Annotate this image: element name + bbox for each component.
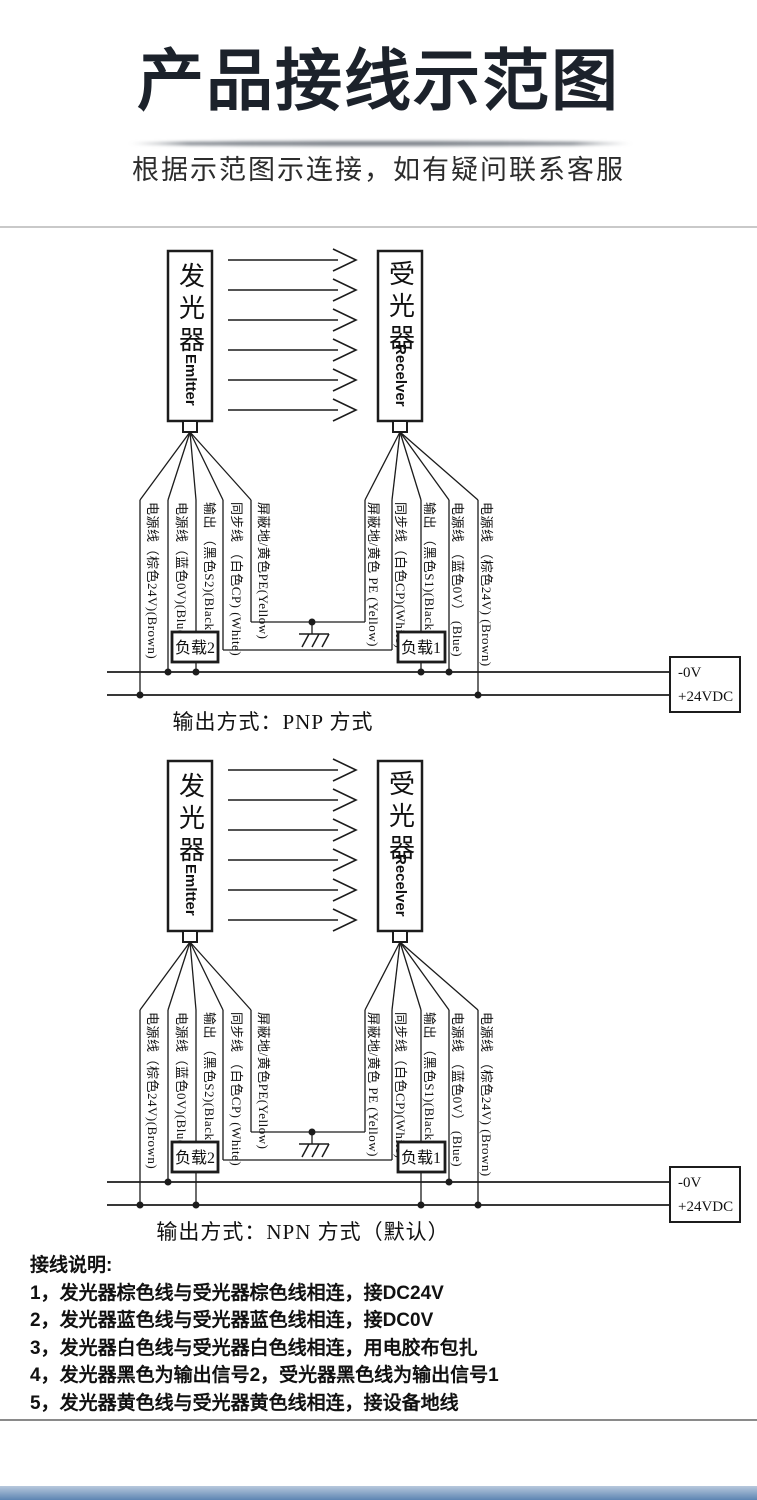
load1-label: 负载1 [401, 1149, 441, 1167]
note-item: 1，发光器棕色线与受光器棕色线相连，接DC24V [30, 1280, 740, 1308]
power-24v-label: +24VDC [678, 1199, 733, 1215]
junction-dot [137, 1202, 144, 1209]
power-24v-label: +24VDC [678, 689, 733, 705]
junction-dot [475, 692, 482, 699]
wire-label-right-4: 电源线 （棕色24V) (Brown) [479, 1012, 494, 1177]
junction-dot [475, 1202, 482, 1209]
load2-label: 负载2 [175, 639, 215, 657]
junction-dot [165, 669, 172, 676]
page: 产品接线示范图 根据示范图示连接，如有疑问联系客服 发光器Emltter受光器R… [0, 0, 757, 1500]
emitter-connector [183, 931, 197, 942]
wire-label-left-1: 电源线（蓝色0V)(Blue) [174, 1012, 189, 1151]
wire-fan-segment [140, 942, 190, 1010]
emitter-label-cn: 发光器 [176, 772, 205, 868]
wire-fan-segment [365, 432, 400, 500]
wire-fan-segment [190, 942, 251, 1010]
emitter-label-cn: 发光器 [176, 262, 205, 358]
wire-label-left-3: 同步线 （白色CP) (White) [229, 1012, 244, 1166]
output-mode-caption: 输出方式：NPN 方式（默认） [156, 1220, 449, 1244]
ground-hatch [322, 1144, 329, 1157]
wire-label-right-3: 电源线 （蓝色0V） (Blue) [450, 1012, 465, 1167]
wire-fan-segment [190, 432, 251, 500]
load2-label: 负载2 [175, 1149, 215, 1167]
receiver-connector [393, 931, 407, 942]
notes-heading: 接线说明: [30, 1252, 740, 1280]
wire-fan-segment [392, 432, 400, 500]
junction-dot [165, 1179, 172, 1186]
ground-hatch [302, 1144, 309, 1157]
wire-label-left-2: 输出 （黑色S2)(Black) [202, 502, 217, 635]
wire-fan-segment [168, 942, 190, 1010]
wire-label-right-3: 电源线 （蓝色0V） (Blue) [450, 502, 465, 657]
junction-dot [193, 669, 200, 676]
wire-label-right-2: 输出 （黑色S1)(Black) [422, 1012, 437, 1145]
wire-label-right-0: 屏蔽地/黄色 PE (Yellow) [366, 1012, 381, 1157]
page-subtitle: 根据示范图示连接，如有疑问联系客服 [0, 150, 757, 190]
note-item: 4，发光器黑色为输出信号2，受光器黑色线为输出信号1 [30, 1362, 740, 1390]
wiring-diagram-pnp: 发光器Emltter受光器Recelver电源线（棕色24V)(Brown)屏蔽… [0, 230, 757, 740]
page-title: 产品接线示范图 [0, 36, 757, 128]
ground-hatch [302, 634, 309, 647]
wire-label-left-4: 屏蔽地/黄色PE(Yellow) [256, 1012, 271, 1149]
wire-fan-segment [400, 942, 421, 1010]
receiver-label-en: Recelver [392, 854, 409, 917]
wire-fan-segment [400, 942, 478, 1010]
wire-label-left-0: 电源线（棕色24V)(Brown) [145, 502, 160, 659]
ground-hatch [322, 634, 329, 647]
junction-dot [193, 1202, 200, 1209]
wire-fan-segment [400, 432, 449, 500]
wiring-diagram-npn: 发光器Emltter受光器Recelver电源线（棕色24V)(Brown)屏蔽… [0, 740, 757, 1250]
wire-fan-segment [392, 942, 400, 1010]
emitter-label-en: Emltter [182, 354, 199, 406]
note-item: 2，发光器蓝色线与受光器蓝色线相连，接DC0V [30, 1307, 740, 1335]
note-item: 5，发光器黄色线与受光器黄色线相连，接设备地线 [30, 1390, 740, 1418]
wiring-notes: 接线说明: 1，发光器棕色线与受光器棕色线相连，接DC24V 2，发光器蓝色线与… [30, 1252, 740, 1417]
junction-dot [446, 669, 453, 676]
wire-fan-segment [140, 432, 190, 500]
wire-label-right-0: 屏蔽地/黄色 PE (Yellow) [366, 502, 381, 647]
top-divider [0, 226, 757, 228]
ground-hatch [312, 634, 319, 647]
wire-label-right-1: 同步线（白色CP)(White) [393, 502, 408, 649]
wire-fan-segment [400, 432, 421, 500]
emitter-connector [183, 421, 197, 432]
output-mode-caption: 输出方式：PNP 方式 [173, 710, 374, 734]
wire-label-left-3: 同步线 （白色CP) (White) [229, 502, 244, 656]
note-item: 3，发光器白色线与受光器白色线相连，用电胶布包扎 [30, 1335, 740, 1363]
wire-fan-segment [400, 942, 449, 1010]
bottom-accent-bar [0, 1486, 757, 1500]
receiver-label-cn: 受光器 [386, 260, 415, 356]
title-shadow-line [128, 141, 633, 146]
wire-label-right-1: 同步线（白色CP)(White) [393, 1012, 408, 1159]
wire-label-right-4: 电源线 （棕色24V) (Brown) [479, 502, 494, 667]
power-0v-label: -0V [678, 665, 701, 681]
wire-fan-segment [365, 942, 400, 1010]
receiver-label-en: Recelver [392, 344, 409, 407]
bottom-divider [0, 1419, 757, 1421]
junction-dot [446, 1179, 453, 1186]
wire-fan-segment [168, 432, 190, 500]
wire-fan-segment [400, 432, 478, 500]
wire-label-left-4: 屏蔽地/黄色PE(Yellow) [256, 502, 271, 639]
junction-dot [418, 1202, 425, 1209]
wire-label-left-1: 电源线（蓝色0V)(Blue) [174, 502, 189, 641]
wire-label-left-0: 电源线（棕色24V)(Brown) [145, 1012, 160, 1169]
receiver-connector [393, 421, 407, 432]
wire-label-right-2: 输出 （黑色S1)(Black) [422, 502, 437, 635]
wire-label-left-2: 输出 （黑色S2)(Black) [202, 1012, 217, 1145]
emitter-label-en: Emltter [182, 864, 199, 916]
load1-label: 负载1 [401, 639, 441, 657]
junction-dot [137, 692, 144, 699]
ground-hatch [312, 1144, 319, 1157]
junction-dot [418, 669, 425, 676]
power-0v-label: -0V [678, 1175, 701, 1191]
receiver-label-cn: 受光器 [386, 770, 415, 866]
